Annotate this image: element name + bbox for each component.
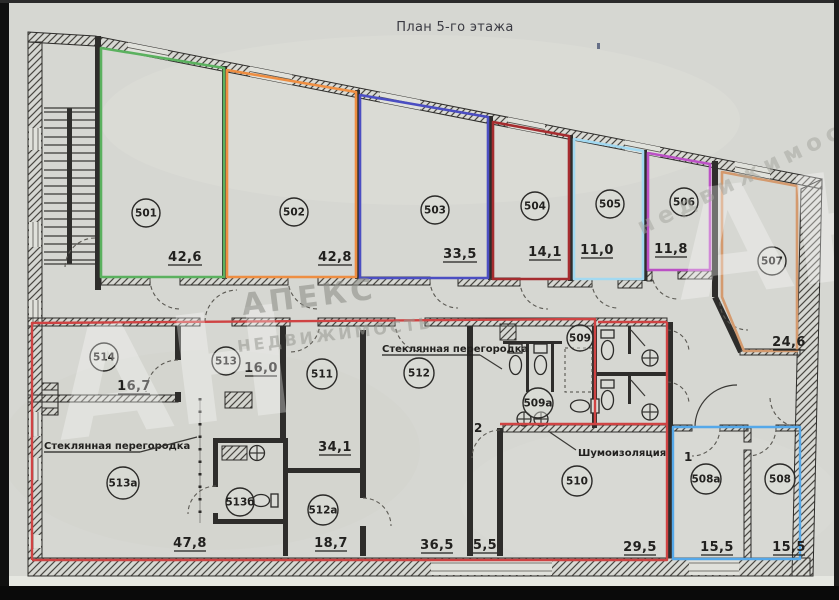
scanned-floor-plan-photo: План 5-го этажа: [0, 0, 839, 600]
room-area: 34,1: [318, 440, 352, 455]
room-number: 505: [599, 199, 621, 211]
room-number: 501: [135, 208, 157, 220]
room-area: 42,6: [168, 250, 202, 265]
room-area: 14,1: [528, 245, 562, 260]
room-number: 508а: [691, 474, 720, 486]
room-area: 18,7: [314, 536, 348, 551]
room-number: 509: [569, 333, 591, 345]
room-area: 24,6: [772, 335, 806, 350]
room-number: 512а: [308, 505, 337, 517]
room-number: 509а: [523, 398, 552, 410]
room-509a: 509а: [523, 388, 553, 418]
room-number: 503: [424, 205, 446, 217]
room-number: 512: [408, 368, 430, 380]
room-513b: 513б: [225, 488, 254, 516]
room-area: 36,5: [420, 538, 454, 553]
room-area: 47,8: [173, 536, 207, 551]
room-area: 42,8: [318, 250, 352, 265]
corridor-area-value: 5,5: [473, 538, 497, 553]
room-area: 33,5: [443, 247, 477, 262]
room-number: 513а: [108, 478, 137, 490]
door-mark-2: 2: [474, 421, 482, 435]
room-number: 502: [283, 207, 305, 219]
room-number: 504: [524, 201, 546, 213]
ink-artifact: [597, 43, 600, 49]
room-number: 508: [769, 474, 791, 486]
room-area: 15,5: [772, 540, 806, 555]
soundproof-wall: [503, 425, 667, 432]
room-number: 510: [566, 476, 588, 488]
glass-partition-label-mid: Стеклянная перегородка: [382, 344, 528, 355]
room-number: 513б: [225, 497, 254, 509]
room-area: 15,5: [700, 540, 734, 555]
soundproofing-label: Шумоизоляция: [578, 448, 666, 459]
stair-stringer: [67, 108, 72, 264]
room-area: 11,0: [580, 243, 614, 258]
floor-plan-drawing: План 5-го этажа: [0, 0, 839, 600]
room-number: 511: [311, 369, 333, 381]
partition-508: [744, 450, 751, 558]
door-mark-1: 1: [684, 450, 692, 464]
room-509: 509: [567, 325, 593, 351]
plan-title: План 5-го этажа: [396, 20, 513, 35]
room-area: 29,5: [623, 540, 657, 555]
